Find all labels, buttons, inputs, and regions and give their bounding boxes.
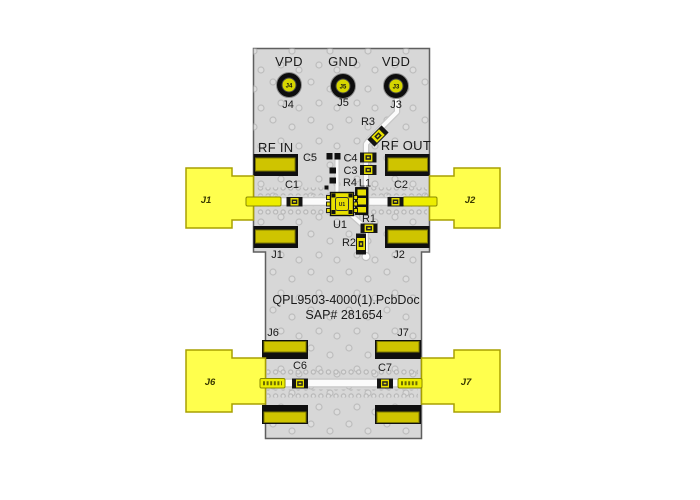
component-u1: U1 bbox=[327, 193, 358, 216]
refdes-j5: J5 bbox=[337, 97, 349, 109]
pcb-assembly-drawing: J1 J2 J6 J7 J4 J5 J3 bbox=[0, 0, 700, 500]
connector-j2-label: J2 bbox=[465, 195, 476, 206]
component-u1-marking: U1 bbox=[339, 202, 346, 208]
component-c4 bbox=[361, 153, 377, 162]
refdes-r3: R3 bbox=[361, 116, 375, 128]
refdes-j7: J7 bbox=[397, 327, 409, 339]
net-label-vdd: VDD bbox=[382, 54, 410, 69]
connector-j6-label: J6 bbox=[205, 377, 216, 388]
board-title-line1: QPL9503-4000(1).PcbDoc bbox=[272, 293, 419, 307]
refdes-j3: J3 bbox=[390, 99, 402, 111]
refdes-u1: U1 bbox=[333, 219, 347, 231]
component-c7 bbox=[378, 379, 393, 388]
testpoint-j5: J5 bbox=[331, 74, 356, 99]
pcb-canvas: J1 J2 J6 J7 J4 J5 J3 bbox=[0, 0, 700, 500]
refdes-c5: C5 bbox=[303, 152, 317, 164]
refdes-c3: C3 bbox=[343, 165, 357, 177]
net-label-vpd: VPD bbox=[275, 54, 303, 69]
refdes-c4: C4 bbox=[343, 153, 357, 165]
refdes-c7: C7 bbox=[378, 362, 392, 374]
testpoint-j3: J3 bbox=[384, 74, 409, 99]
refdes-l1: L1 bbox=[359, 178, 371, 190]
component-r1 bbox=[361, 224, 377, 233]
connector-j1-label: J1 bbox=[201, 195, 212, 206]
component-c3 bbox=[361, 166, 377, 175]
connector-j7: J7 bbox=[422, 350, 501, 412]
refdes-r1: R1 bbox=[362, 213, 376, 225]
board-title-line2: SAP# 281654 bbox=[305, 308, 382, 322]
testpoint-j5-pin-label: J5 bbox=[340, 85, 347, 91]
refdes-c6: C6 bbox=[293, 360, 307, 372]
component-c6 bbox=[293, 379, 308, 388]
component-c1 bbox=[287, 198, 302, 207]
component-r2 bbox=[357, 234, 366, 254]
refdes-j6: J6 bbox=[267, 327, 279, 339]
net-label-gnd: GND bbox=[328, 54, 358, 69]
rf-in-label: RF IN bbox=[258, 140, 293, 155]
refdes-c2: C2 bbox=[394, 179, 408, 191]
component-c2 bbox=[388, 198, 403, 207]
refdes-j1: J1 bbox=[271, 249, 283, 261]
testpoint-j3-pin-label: J3 bbox=[393, 85, 400, 91]
rf-out-label: RF OUT bbox=[381, 138, 431, 153]
connector-j2: J2 bbox=[430, 168, 501, 228]
connector-j7-label: J7 bbox=[461, 377, 472, 388]
connector-j6: J6 bbox=[186, 350, 266, 412]
testpoint-j4: J4 bbox=[277, 73, 302, 98]
refdes-c1: C1 bbox=[285, 179, 299, 191]
connector-j1: J1 bbox=[186, 168, 254, 228]
fiducial-dot bbox=[325, 186, 329, 190]
refdes-j2: J2 bbox=[393, 249, 405, 261]
refdes-r4: R4 bbox=[343, 177, 357, 189]
refdes-r2: R2 bbox=[342, 237, 356, 249]
refdes-j4: J4 bbox=[282, 99, 294, 111]
testpoint-j4-pin-label: J4 bbox=[286, 84, 293, 90]
